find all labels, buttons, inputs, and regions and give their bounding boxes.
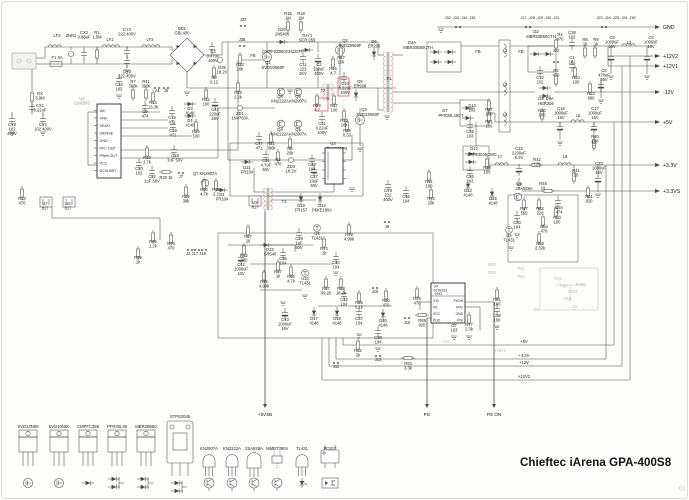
rail-arrow (655, 64, 660, 68)
tl431-symbol (300, 481, 305, 485)
transistor (514, 193, 522, 201)
transistor-symbol (272, 478, 282, 488)
component-label: R192.7k (143, 155, 152, 165)
legend-part-name: 2SA928A (245, 446, 263, 451)
component-label: R11390k (142, 79, 152, 89)
ic-pin-label: PSON (454, 299, 464, 303)
component-label: R75470 (413, 296, 421, 306)
component-label: R39100 (483, 165, 491, 175)
rail-label: +12V2 (663, 54, 678, 60)
terminal-arrow (425, 404, 429, 408)
component-label: MBR20B60CTH (403, 45, 432, 50)
schematic-canvas: LF3ZNR1CX20.68uFR11.5MLF1CY4222 400VLF2B… (0, 0, 689, 500)
ic-pin-label: VFB (100, 117, 108, 121)
component-label: R604.7k (200, 187, 209, 197)
component-label: R93 (488, 262, 496, 267)
resistor (583, 48, 586, 56)
ic-pin-label: VEAO (100, 124, 110, 128)
jumper (240, 25, 242, 27)
diode (448, 50, 453, 54)
component-label: LF2 (146, 37, 154, 42)
disc-component (237, 105, 242, 110)
component-label: 25V (600, 77, 608, 82)
component-label: LF3 (53, 33, 61, 38)
to220-hole (86, 431, 90, 435)
component-label: R69820 (418, 318, 426, 328)
component-label: F1 4A (52, 55, 63, 60)
component-label: R3210k (236, 62, 244, 72)
component-label: L3 (627, 40, 632, 45)
component-label: R3470 (553, 68, 561, 78)
component-label: 16V (557, 115, 565, 120)
component-label: C24474 (555, 205, 563, 215)
component-label: C35104 (279, 256, 287, 266)
component-label: R622k (354, 348, 362, 358)
ic-pin-label: PGI (457, 319, 463, 323)
component-label: R741k (320, 246, 328, 256)
transistor-symbol (204, 478, 214, 488)
component-label: R652.2k (149, 239, 158, 249)
component-label: R855.1k (355, 300, 364, 310)
component-label: J6 (385, 224, 390, 229)
jumper (239, 45, 241, 47)
legend-part-name: SVD13N60 (18, 424, 40, 429)
component-label: D12 (470, 146, 478, 151)
to92l-body (247, 453, 261, 468)
component-label: J2 J17 J18 (186, 251, 207, 256)
disc-component (68, 51, 73, 56)
diode (434, 50, 439, 54)
component-label: R964.7k (287, 274, 296, 284)
component-label: L7 (498, 154, 503, 159)
to220-body (137, 437, 155, 452)
component-label: T2 (321, 88, 327, 93)
ic-pin-label: GND (100, 139, 109, 143)
component-label: R30100 (538, 108, 546, 118)
component-label: C58100 (493, 313, 501, 323)
diode (280, 40, 285, 44)
component-label: J7 (179, 174, 184, 179)
rail-label: +3.3V (663, 163, 677, 169)
ic-pin-label: GND (456, 312, 464, 316)
component-label: R50100 (553, 215, 561, 225)
component-label: C1102 (569, 55, 577, 65)
component-label: R81100 (493, 297, 501, 307)
component-label: C12102 (536, 75, 544, 85)
component-label: R21100 (485, 119, 493, 129)
component-label: C38104 (374, 335, 382, 345)
diode (534, 52, 539, 56)
resistor (131, 90, 134, 98)
component-label: 50V (262, 167, 270, 172)
component-label: ZD318.2V (286, 164, 297, 174)
legend-part-name: STPS3045 (170, 414, 191, 419)
diode (112, 477, 117, 481)
transformer (271, 188, 273, 210)
ic-pin-label: FPO (456, 306, 463, 310)
component-label: CX10.22uF (34, 103, 47, 113)
ic-pin-label: DC/ILIMIT (100, 169, 118, 173)
component-label: C40104 (332, 260, 340, 270)
component-label: C26103 (466, 174, 474, 184)
component-label: J19 (533, 307, 540, 312)
component-label: 100V (317, 130, 327, 135)
component-label: R91k (593, 37, 599, 47)
component-label: SVD13N60F (339, 43, 362, 48)
component-label: R772.3k (465, 322, 474, 332)
component-label: D14P6KE180A (312, 203, 332, 213)
component-label: R51820 (585, 194, 593, 204)
rail-label: +5V (663, 120, 673, 126)
component-label: R582.32k (535, 241, 546, 251)
component-label: U8TL431 (311, 231, 323, 241)
component-label: R94 (488, 270, 496, 275)
component-label: F201 (568, 289, 578, 294)
component-label: C30104 (513, 220, 521, 230)
component-label: PFR30L45CT (438, 113, 464, 118)
component-label: 50V (295, 245, 303, 250)
component-label: 400V (7, 131, 17, 136)
component-label: R11.5M (92, 30, 102, 40)
component-label: 400V (314, 71, 324, 76)
component-label: R22680 (587, 91, 595, 101)
to220-body (19, 437, 37, 452)
diode (546, 52, 551, 56)
component-label: 16V (647, 44, 655, 49)
component-label: J16 (372, 289, 379, 294)
transistor-symbol (227, 478, 237, 488)
transformer (383, 52, 385, 112)
jumper (553, 61, 555, 63)
inductor (48, 45, 61, 47)
component-label: R8818.2k (336, 286, 347, 296)
jumper-group-label: J23 ,J24 ,J25 ,J26 ,J36 (596, 16, 635, 20)
component-label: R954.99k (259, 279, 270, 289)
diode (299, 197, 303, 201)
legend-part-name: CMPFC288 (77, 424, 100, 429)
component-label: C321uF 50V (144, 174, 160, 184)
diode (312, 311, 316, 315)
component-label: CX20.68uF (78, 30, 91, 40)
component-label: CY4222 400V (118, 27, 136, 37)
component-label: R4470 (557, 32, 565, 42)
component-label: D34148 (185, 106, 195, 116)
resistor (593, 48, 596, 56)
rail-arrow (655, 90, 660, 94)
component-label: D204148 (378, 318, 388, 328)
component-label: FB (518, 49, 524, 54)
ecap (608, 59, 614, 61)
component-label: C9474 (142, 109, 150, 119)
component-label: L8 (563, 154, 568, 159)
component-label: R1010k (340, 118, 348, 128)
diode (141, 477, 146, 481)
component-label: D6ER208 (368, 39, 381, 49)
component-label: R76470 (167, 241, 175, 251)
component-label: PQ1 (554, 276, 563, 281)
component-label: Q9KN2907A (289, 94, 307, 104)
component-label: BD1GBL406 (174, 26, 190, 36)
component-label: U10TL431 (299, 276, 311, 286)
internal-rail-label: +3.3V (519, 353, 530, 358)
rail-arrow (655, 54, 660, 58)
jumper (384, 221, 386, 223)
ic-pin-label: PFC OUT (100, 147, 117, 151)
component-label: R181M (297, 11, 305, 21)
legend-part-name: SVD10N60 (49, 424, 71, 429)
ic-part: -OHG (434, 292, 443, 296)
component-label: D21FR104 (241, 165, 254, 175)
to220-hole (26, 431, 30, 435)
diode (381, 313, 385, 317)
component-label: C25103 (466, 129, 474, 139)
rail-label: GND (663, 25, 675, 31)
transistor-symbol (249, 478, 259, 488)
component-label: L2 (503, 48, 508, 53)
to247-hole (170, 425, 174, 429)
sot23-body (272, 456, 282, 463)
component-label: R971k (274, 269, 282, 279)
component-label: J5 (164, 88, 169, 93)
component-label: 50V (310, 183, 318, 188)
component-label: D154148 (488, 196, 498, 206)
diode (335, 311, 339, 315)
component-label: CMPF02B60GN220FP (262, 49, 304, 54)
component-label: R7220k (427, 196, 435, 206)
component-label: R27100 (485, 107, 493, 117)
component-label: R91 (517, 266, 525, 271)
component-label: CY3222 400V (118, 69, 136, 79)
to247-hole (186, 425, 190, 429)
component-label: C37104 (355, 316, 363, 326)
component-label: 6.3V (515, 155, 524, 160)
component-label: 400V (383, 197, 393, 202)
terminal-label: PG (424, 412, 431, 417)
rail-label: +12V1 (663, 64, 678, 70)
component-label: C32104 (340, 297, 348, 307)
component-label: 400V (208, 58, 218, 63)
component-label: Q8KN2222A (271, 94, 289, 104)
component-label: Q4KN2222A (271, 127, 289, 137)
component-label: R81k (582, 37, 588, 47)
component-label: 10V (237, 271, 245, 276)
ic-pin-label: IAC (100, 109, 106, 113)
to247-pad (173, 433, 187, 450)
component-label: RX5.9M (35, 91, 45, 101)
component-label: D5ER508 (354, 79, 367, 89)
transformer (391, 52, 393, 112)
jumper-group-label: J32 ,J33 ,J34 ,J35 (445, 16, 476, 20)
diode (86, 481, 91, 485)
schematic-title: Chieftec iArena GPA-400S8 (520, 457, 689, 469)
resistor (95, 50, 98, 58)
disc-component (288, 157, 293, 162)
component-label: C20102 (135, 166, 143, 176)
component-label: Q5KN2907A (289, 127, 307, 137)
inductor (142, 45, 160, 47)
legend-part-name: KN2907A (200, 446, 218, 451)
component-label: R151M (284, 11, 292, 21)
legend-part-name: TL431 (296, 446, 309, 451)
jumper (404, 317, 406, 319)
resistor (144, 90, 147, 98)
component-label: R52220 (536, 206, 544, 216)
diode (434, 60, 439, 64)
rail-arrow (655, 25, 660, 29)
component-label: C15471 (168, 115, 176, 125)
component-label: 16V (608, 44, 616, 49)
to220-body (50, 437, 68, 452)
component-label: L2 (503, 112, 508, 117)
component-label: R520k (287, 146, 295, 156)
component-label: D174148 (309, 316, 319, 326)
component-label: R42120 (533, 157, 541, 167)
component-label: J13 (375, 357, 382, 362)
terminal-label: PS ON (487, 412, 501, 417)
component-label: R1413.3k (148, 100, 159, 110)
ic-pin-label: PGO (433, 319, 441, 323)
component-label: C44 (442, 339, 450, 344)
internal-rail-label: +5V (520, 339, 528, 344)
component-label: CY1102 400V (34, 122, 52, 132)
component-label: 2KV (299, 71, 307, 76)
component-label: Q7 KN2907A (193, 171, 217, 176)
to92-body (226, 455, 238, 467)
component-label: R380.33 (343, 128, 352, 138)
component-label: C49104 (308, 162, 316, 172)
component-label: R591k (134, 255, 142, 265)
component-label: R80.12 (210, 75, 219, 85)
component-label: R20 1k (160, 175, 174, 180)
legend-part-name: MBR20B60 (135, 424, 157, 429)
page-border (2, 2, 688, 499)
component-label: R10100 (572, 75, 580, 85)
diode (469, 160, 474, 164)
rail-arrow (655, 189, 660, 193)
component-label: R92 (517, 274, 525, 279)
component-label: R61100 (425, 179, 433, 189)
component-label: R47560 (520, 206, 528, 216)
legend-part-name: MMBT3904 (266, 446, 288, 451)
component-label: T1 (387, 76, 393, 81)
component-label: C47471 (255, 141, 263, 151)
inductor (102, 45, 120, 47)
component-label: J11 (333, 364, 340, 369)
diode (466, 116, 471, 120)
component-label: R21390k (267, 141, 277, 151)
component-label: 16V (591, 115, 599, 120)
component-label: R1710k (337, 55, 345, 65)
component-label: D2518.2V (217, 65, 228, 75)
jumper-group-label: J27 ,J28 ,J29 ,J30 ,J31 (520, 16, 559, 20)
component-label: R80470 (382, 298, 390, 308)
jumper (243, 45, 245, 47)
component-label: R794.99k (344, 232, 355, 242)
diode (112, 485, 117, 489)
resistor (418, 313, 426, 316)
resistor (299, 22, 302, 30)
ic-pin-label: VCC (100, 162, 108, 166)
component-label: ZNR1 (66, 33, 77, 38)
component-label: R54470 (540, 224, 548, 234)
component-label: U2CM6903 (74, 96, 90, 106)
ic-u3 (325, 148, 343, 184)
component-label: R8639k (182, 194, 190, 204)
inductor (571, 120, 584, 122)
component-label: U5TL431 (503, 233, 515, 243)
component-label: J22 (553, 48, 560, 53)
component-label: FB (250, 53, 256, 58)
page-corner-mark (681, 487, 682, 488)
component-label: ZD11N4760A (231, 111, 248, 121)
component-label: D184148 (332, 316, 342, 326)
ecap (591, 129, 597, 131)
legend-part-name: PFR30L45 (107, 424, 128, 429)
schematic-svg: LF3ZNR1CX20.68uFR11.5MLF1CY4222 400VLF2B… (0, 0, 689, 500)
component-label: C18471 (169, 128, 177, 138)
to220-body (79, 437, 97, 452)
rail-label: +3.3VS (663, 189, 681, 195)
component-label: 16V (281, 326, 289, 331)
component-label: C38102 (568, 30, 576, 40)
component-label: 25V (211, 116, 219, 121)
component-label: D19FR157 (295, 203, 308, 213)
to92-body (296, 455, 308, 467)
wire (305, 483, 308, 485)
to220-hole (57, 431, 61, 435)
component-label: SVD10N60F (262, 65, 285, 70)
component-label: 2SA928A (515, 186, 533, 191)
component-label: D44148 (185, 118, 195, 128)
component-label: H3N1 (495, 348, 506, 353)
transformer (264, 188, 266, 210)
ecap (516, 171, 522, 173)
component-label: J10 (404, 320, 411, 325)
rail-label: -12V (663, 90, 674, 96)
diode (318, 197, 322, 201)
component-label: R672k (244, 234, 252, 244)
component-label: C191uF 50V (167, 153, 183, 163)
rail-arrow (655, 120, 660, 124)
terminal-arrow (492, 404, 496, 408)
resistor (30, 93, 33, 101)
bridge-rectifier (170, 38, 204, 72)
to92-body (203, 455, 215, 467)
to220-body (108, 437, 126, 452)
to220-hole (144, 431, 148, 435)
component-label: THY1SCR 055 (299, 33, 316, 43)
component-label: PU1 (564, 296, 573, 301)
con1-connector (12, 53, 36, 69)
component-label: R4110 (572, 168, 580, 178)
legend-part-name: KN2222A (223, 446, 241, 451)
component-label: R40100 (591, 134, 599, 144)
component-label: J37 (240, 17, 247, 22)
jumper (388, 221, 390, 223)
component-label: R164.7 (329, 66, 337, 76)
ic-pin-label: V33 (433, 299, 439, 303)
component-label: 100V (340, 90, 350, 95)
to220-hole (115, 431, 119, 435)
component-label: D22SR540 (264, 247, 277, 257)
diode (543, 86, 548, 90)
diode (305, 48, 310, 52)
component-label: FQ1 (560, 283, 569, 288)
component-label: HER206 (538, 101, 554, 106)
component-label: R282.2k (234, 90, 243, 100)
component-label: R12100 (202, 97, 210, 107)
opto-symbol (322, 478, 338, 488)
